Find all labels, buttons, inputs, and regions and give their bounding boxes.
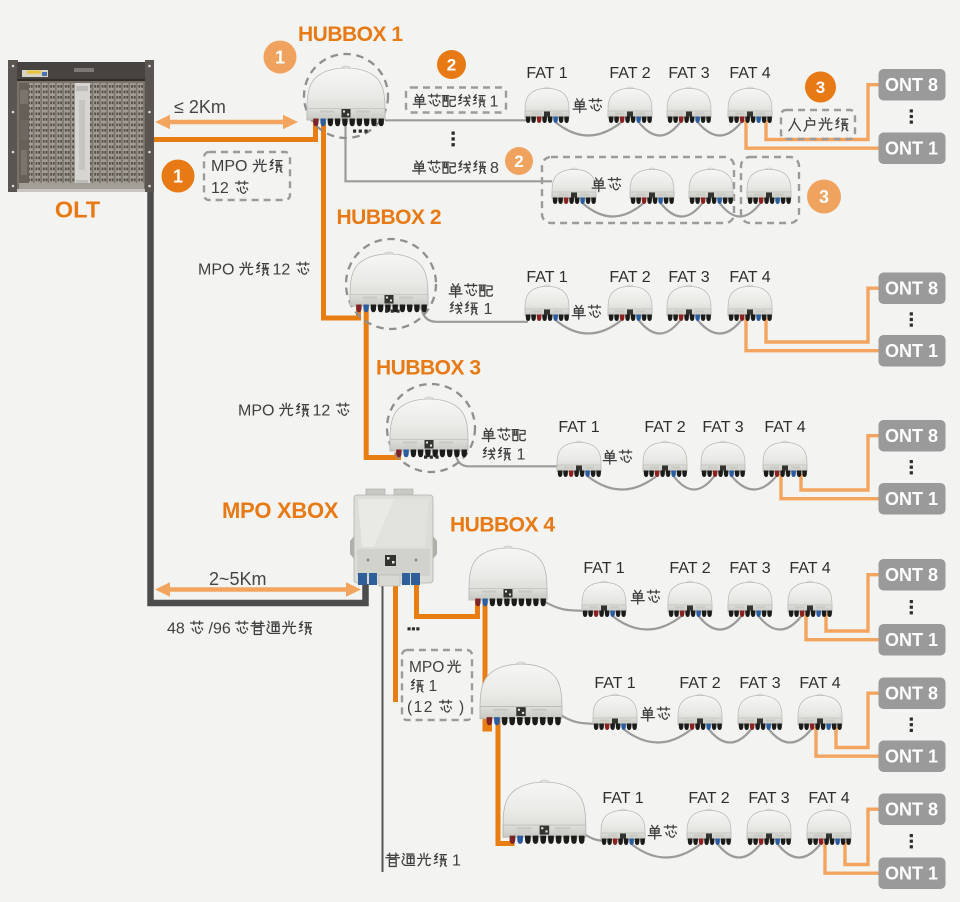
svg-text:48: 48	[167, 621, 185, 638]
svg-text:FAT 1: FAT 1	[526, 65, 567, 82]
svg-text:FAT 4: FAT 4	[729, 269, 770, 286]
svg-text:ONT 1: ONT 1	[885, 341, 938, 361]
svg-text:FAT 4: FAT 4	[764, 419, 805, 436]
svg-text:FAT 3: FAT 3	[748, 790, 789, 807]
svg-text:HUBBOX 3: HUBBOX 3	[376, 357, 481, 380]
svg-text:12: 12	[273, 262, 291, 279]
svg-text:12: 12	[211, 180, 229, 197]
svg-text:HUBBOX 1: HUBBOX 1	[298, 23, 403, 46]
svg-text:ONT 8: ONT 8	[885, 565, 938, 585]
svg-text:2~5Km: 2~5Km	[209, 569, 267, 589]
svg-text:MPO: MPO	[198, 262, 234, 279]
svg-text:/96: /96	[209, 621, 231, 638]
svg-text:ONT 1: ONT 1	[885, 630, 938, 650]
svg-text:FAT 2: FAT 2	[679, 675, 720, 692]
svg-text:HUBBOX 4: HUBBOX 4	[450, 514, 555, 537]
svg-text:3: 3	[819, 187, 829, 207]
svg-text:1: 1	[275, 47, 285, 67]
svg-text:1: 1	[429, 678, 438, 695]
svg-text:MPO: MPO	[238, 403, 274, 420]
svg-text:FAT 2: FAT 2	[609, 65, 650, 82]
svg-text:FAT 4: FAT 4	[789, 560, 830, 577]
svg-text:1: 1	[173, 166, 183, 186]
svg-text:FAT 2: FAT 2	[644, 419, 685, 436]
svg-text:ONT 1: ONT 1	[885, 138, 938, 158]
svg-text:FAT 3: FAT 3	[702, 419, 743, 436]
svg-text:ONT 8: ONT 8	[885, 683, 938, 703]
svg-text:1: 1	[484, 301, 493, 318]
svg-text:(12: (12	[407, 699, 434, 716]
svg-text:MPO: MPO	[211, 158, 247, 175]
svg-text:ONT 8: ONT 8	[885, 75, 938, 95]
svg-text:FAT 3: FAT 3	[729, 560, 770, 577]
svg-text:FAT 4: FAT 4	[799, 675, 840, 692]
svg-text:OLT: OLT	[55, 197, 101, 223]
svg-text:3: 3	[816, 78, 825, 97]
svg-text:ONT 8: ONT 8	[885, 426, 938, 446]
svg-text:ONT 1: ONT 1	[885, 489, 938, 509]
svg-text:MPO XBOX: MPO XBOX	[222, 498, 339, 523]
svg-text:FAT 1: FAT 1	[602, 790, 643, 807]
svg-text:FAT 4: FAT 4	[729, 65, 770, 82]
svg-text:FAT 1: FAT 1	[594, 675, 635, 692]
svg-text:FAT 3: FAT 3	[739, 675, 780, 692]
svg-text:FAT 1: FAT 1	[526, 269, 567, 286]
svg-text:FAT 3: FAT 3	[668, 269, 709, 286]
svg-text:FAT 2: FAT 2	[609, 269, 650, 286]
svg-text:12: 12	[313, 403, 331, 420]
svg-text:2: 2	[447, 56, 456, 75]
svg-text:MPO: MPO	[409, 659, 444, 676]
svg-text:1: 1	[517, 447, 526, 464]
svg-text:ONT 1: ONT 1	[885, 746, 938, 766]
svg-text:FAT 4: FAT 4	[808, 790, 849, 807]
svg-text:HUBBOX 2: HUBBOX 2	[337, 206, 442, 229]
svg-text:1: 1	[490, 94, 499, 111]
svg-text:2: 2	[514, 152, 523, 171]
svg-text:): )	[459, 699, 464, 716]
svg-text:FAT 2: FAT 2	[688, 790, 729, 807]
svg-text:8: 8	[490, 160, 499, 177]
svg-text:FAT 1: FAT 1	[558, 419, 599, 436]
svg-text:ONT 8: ONT 8	[885, 278, 938, 298]
svg-text:1: 1	[452, 853, 461, 870]
svg-text:≤ 2Km: ≤ 2Km	[174, 97, 226, 117]
svg-text:ONT 8: ONT 8	[885, 799, 938, 819]
svg-text:FAT 3: FAT 3	[668, 65, 709, 82]
svg-text:FAT 2: FAT 2	[669, 560, 710, 577]
svg-text:FAT 1: FAT 1	[583, 560, 624, 577]
svg-text:ONT 1: ONT 1	[885, 863, 938, 883]
